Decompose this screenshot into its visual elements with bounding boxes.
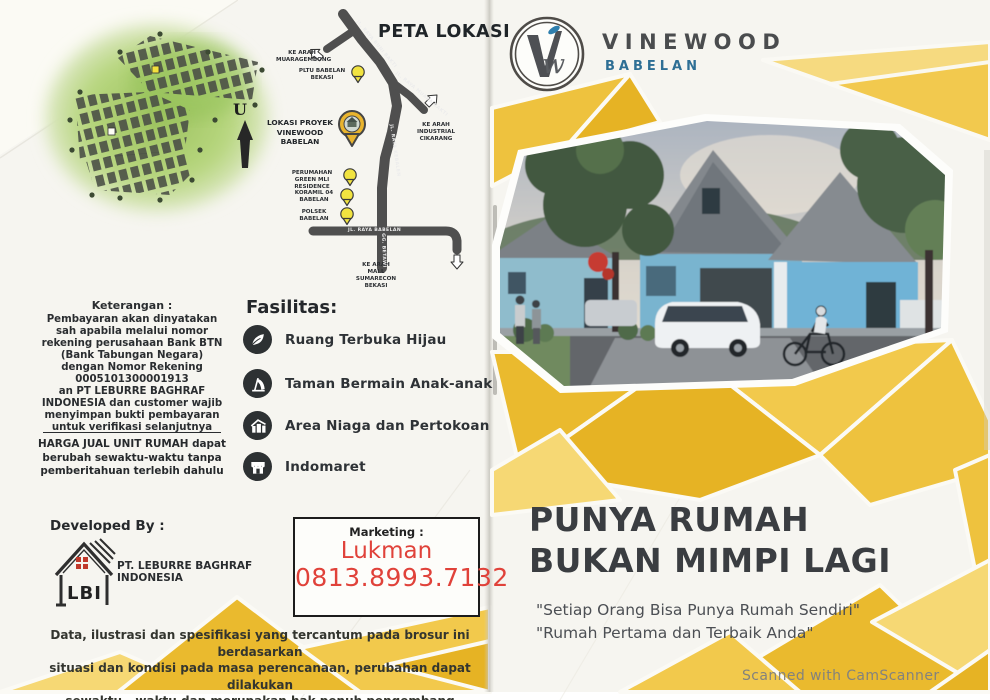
- developed-by-title: Developed By :: [50, 518, 165, 534]
- north-label: U: [233, 100, 247, 119]
- facility-label: Ruang Terbuka Hijau: [285, 332, 446, 348]
- map-project-label: LOKASI PROYEK VINEWOOD BABELAN: [258, 118, 342, 147]
- facility-item: Area Niaga dan Pertokoan: [243, 411, 490, 440]
- keterangan-block: Keterangan : Pembayaran akan dinyatakan …: [33, 299, 231, 434]
- facility-label: Taman Bermain Anak-anak: [285, 376, 492, 392]
- commerce-icon: [243, 411, 272, 440]
- map-marker-label-koramil: KORAMIL 04 BABELAN: [290, 190, 338, 204]
- storefront-icon: [243, 452, 272, 481]
- marketing-box: Marketing : Lukman 0813.8993.7132: [293, 517, 480, 617]
- facility-item: Taman Bermain Anak-anak: [243, 369, 492, 398]
- facility-item: Ruang Terbuka Hijau: [243, 325, 446, 354]
- keterangan-divider: [43, 432, 221, 433]
- marketing-name: Lukman: [295, 539, 478, 563]
- facility-label: Indomaret: [285, 459, 366, 475]
- disclaimer-text: Data, ilustrasi dan spesifikasi yang ter…: [40, 627, 480, 700]
- brand-location: BABELAN: [605, 59, 701, 74]
- facilities-title: Fasilitas:: [246, 297, 337, 318]
- facility-item: Indomaret: [243, 452, 366, 481]
- map-marker-label-pltu: PLTU BABELAN BEKASI: [296, 68, 348, 82]
- keterangan-title: Keterangan :: [33, 299, 231, 312]
- map-arrow-label-cikarang: KE ARAH INDUSTRIAL CIKARANG: [408, 122, 464, 143]
- camscanner-watermark: Scanned with CamScanner: [742, 668, 939, 684]
- map-marker-label-green: PERUMAHAN GREEN MLI RESIDENCE: [284, 170, 340, 191]
- map-arrow-label-muaragembong: KE ARAH MUARAGEMBONG: [276, 50, 328, 64]
- developer-company: PT. LEBURRE BAGHRAF INDONESIA: [117, 560, 292, 584]
- keterangan-body: Pembayaran akan dinyatakan sah apabila m…: [33, 314, 231, 434]
- hero-headline: PUNYA RUMAH BUKAN MIMPI LAGI: [529, 500, 891, 582]
- brochure-scan: w VINEWOOD BABELAN PETA LOKASI U KE ARAH…: [0, 0, 990, 700]
- lbi-logo: LBI: [52, 535, 116, 611]
- hero-quotes: "Setiap Orang Bisa Punya Rumah Sendiri" …: [536, 599, 860, 646]
- monogram-w: w: [542, 49, 565, 80]
- road-label-4: JL. RAYA BABELAN: [348, 228, 401, 233]
- price-note: HARGA JUAL UNIT RUMAH dapat berubah sewa…: [33, 438, 231, 479]
- vinewood-logo: w: [504, 10, 590, 96]
- lbi-logo-text: LBI: [67, 583, 102, 604]
- brand-name: VINEWOOD: [602, 30, 786, 54]
- project-pin-icon: [339, 111, 365, 146]
- marketing-label: Marketing :: [295, 525, 478, 539]
- playground-icon: [243, 369, 272, 398]
- map-title: PETA LOKASI: [378, 22, 510, 42]
- facility-label: Area Niaga dan Pertokoan: [285, 418, 490, 434]
- leaf-icon: [243, 325, 272, 354]
- marketing-phone: 0813.8993.7132: [295, 563, 478, 592]
- map-arrow-label-summarecon: KE ARAH MALL SUMARECON BEKASI: [348, 262, 404, 290]
- map-marker-label-polsek: POLSEK BABELAN: [292, 209, 336, 223]
